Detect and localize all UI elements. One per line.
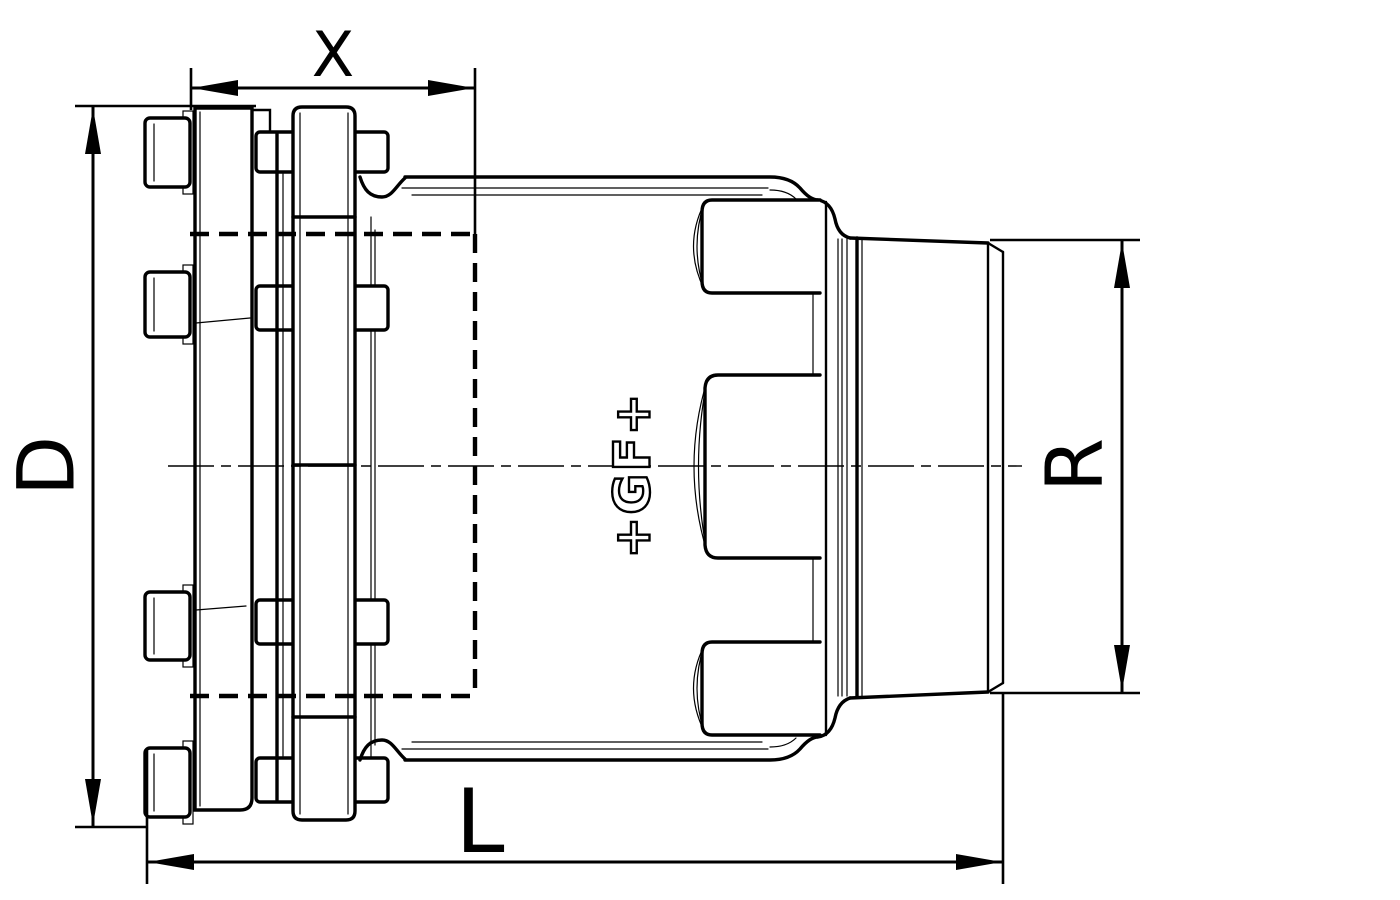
gf-brand-logo: +GF+ (604, 392, 662, 559)
flange-plate (195, 108, 252, 810)
arrowhead-down (1114, 645, 1130, 691)
gland-ring (293, 107, 355, 820)
coupling-technical-drawing: X D R L +GF+ (0, 0, 1400, 900)
arrowhead-left (192, 80, 238, 96)
arrowhead-right (428, 80, 474, 96)
dim-label-l: L (455, 770, 504, 873)
arrowhead-down (85, 779, 101, 825)
arrowhead-up (85, 108, 101, 154)
arrowhead-up (1114, 242, 1130, 288)
technical-drawing-page: X D R L +GF+ (0, 0, 1400, 900)
grip-tabs (694, 200, 821, 735)
arrowhead-right (956, 854, 1002, 870)
arrowhead-left (148, 854, 194, 870)
bolt-washer-band (183, 111, 193, 824)
bolt-heads (145, 118, 190, 817)
grip-ring (838, 238, 862, 697)
dim-label-x: X (312, 18, 354, 91)
dim-label-r: R (1030, 438, 1120, 492)
dim-label-d: D (2, 436, 92, 496)
spigot-end (850, 238, 1003, 698)
